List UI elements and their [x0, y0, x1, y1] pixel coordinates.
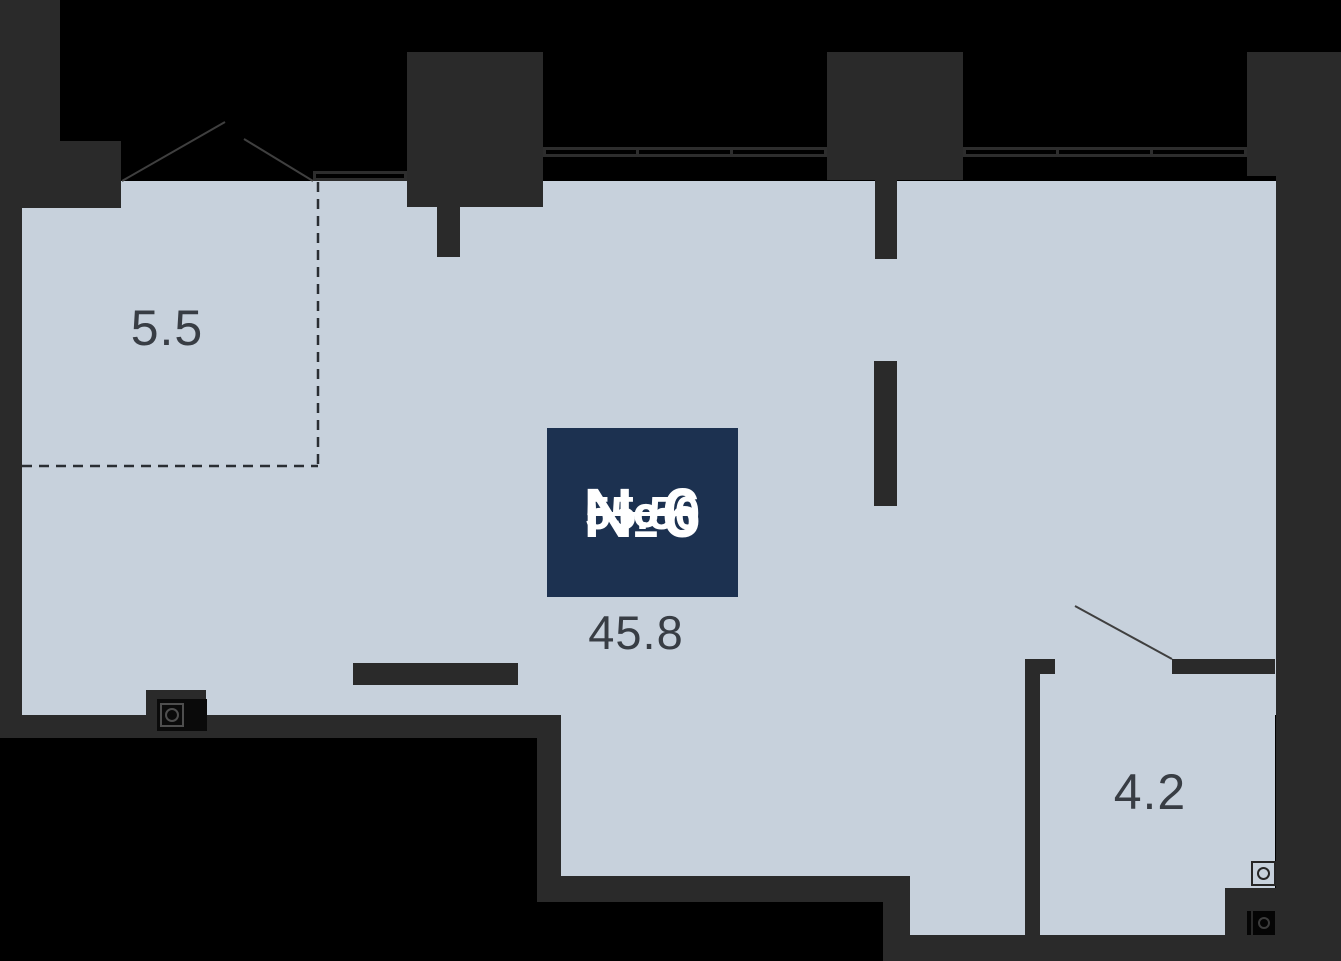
window-tick: [404, 171, 407, 181]
window-right: [963, 147, 1247, 157]
door-swing-left-b: [244, 139, 313, 181]
floor-niche: [910, 876, 1025, 935]
wall-kitchen-counter: [353, 663, 518, 685]
wall-bottom-left-band: [0, 715, 537, 738]
wall-step-vertical: [537, 715, 561, 876]
floor-lower-area: [561, 715, 1025, 876]
unit-badge: №6 55.50: [547, 428, 738, 597]
wall-top-left-column: [0, 0, 60, 208]
floor-bathroom-lower: [1040, 888, 1225, 935]
window-tick: [543, 147, 546, 157]
window-tick: [1056, 147, 1059, 157]
wall-pillar-mid: [827, 52, 963, 180]
wall-bottom-step: [883, 902, 910, 961]
unit-area: 55.50: [585, 490, 700, 536]
wall-pillar-left: [407, 52, 543, 207]
washer-dark-icon: [1253, 911, 1275, 935]
washer-dark-drum: [1258, 917, 1270, 929]
window-tick: [636, 147, 639, 157]
window-tick: [1150, 147, 1153, 157]
window-mid: [543, 147, 827, 157]
sink-appliance-burner: [165, 708, 179, 722]
window-tick: [1244, 147, 1247, 157]
window-tick: [824, 147, 827, 157]
wall-top-left-block: [60, 141, 121, 208]
floor-plan: №6 55.50 5.5 45.8 4.2: [0, 0, 1341, 961]
wall-bathroom-top: [1172, 659, 1275, 674]
wall-bathroom-left: [1025, 659, 1040, 935]
room-label-main: 45.8: [536, 603, 736, 663]
window-tick: [730, 147, 733, 157]
door-swing-left-a: [122, 122, 225, 181]
sink-appliance-frame: [160, 703, 184, 727]
wall-left: [0, 208, 22, 738]
window-tick: [313, 171, 316, 181]
wall-right: [1276, 176, 1341, 961]
wall-bottom-mid-band: [537, 876, 910, 902]
window-left: [313, 171, 407, 181]
window-tick: [963, 147, 966, 157]
washer-light-drum: [1257, 867, 1270, 880]
washer-light-icon: [1251, 861, 1276, 886]
washer-dark-bar: [1247, 911, 1251, 935]
wall-bathroom-left-stub: [1040, 659, 1055, 674]
wall-top-right-block: [1247, 52, 1341, 176]
room-label-loggia: 5.5: [67, 298, 267, 358]
room-label-bathroom: 4.2: [1050, 762, 1250, 822]
sink-appliance-icon: [157, 699, 207, 731]
wall-pillar-mid-stub: [875, 180, 897, 259]
wall-pillar-left-stub: [437, 207, 460, 257]
wall-interior-segment: [874, 361, 897, 506]
